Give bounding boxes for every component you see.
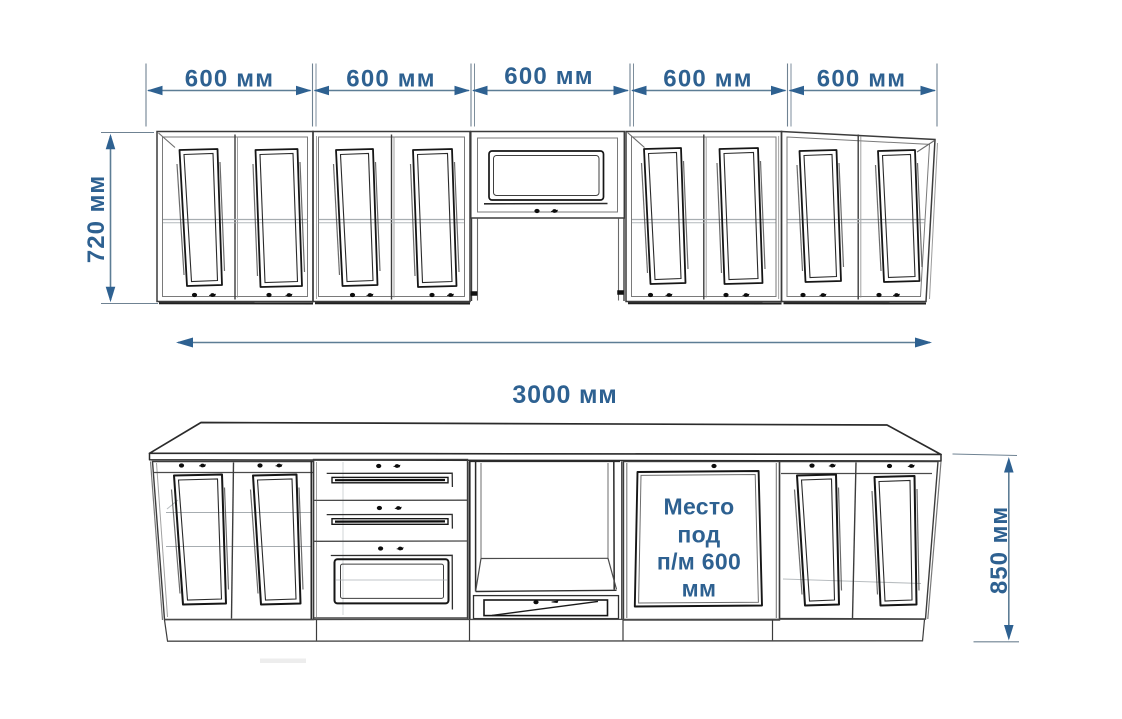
svg-text:600 мм: 600 мм (185, 66, 274, 93)
svg-text:600 мм: 600 мм (663, 66, 752, 93)
svg-text:600 мм: 600 мм (504, 63, 593, 90)
svg-text:600 мм: 600 мм (346, 66, 435, 93)
svg-text:600 мм: 600 мм (817, 66, 906, 93)
svg-text:мм: мм (682, 576, 717, 602)
svg-text:3000 мм: 3000 мм (512, 381, 617, 409)
svg-text:850 мм: 850 мм (986, 506, 1013, 594)
svg-text:720 мм: 720 мм (83, 175, 110, 263)
svg-text:под: под (677, 522, 720, 548)
svg-text:п/м 600: п/м 600 (657, 549, 741, 575)
svg-text:Место: Место (664, 494, 735, 520)
